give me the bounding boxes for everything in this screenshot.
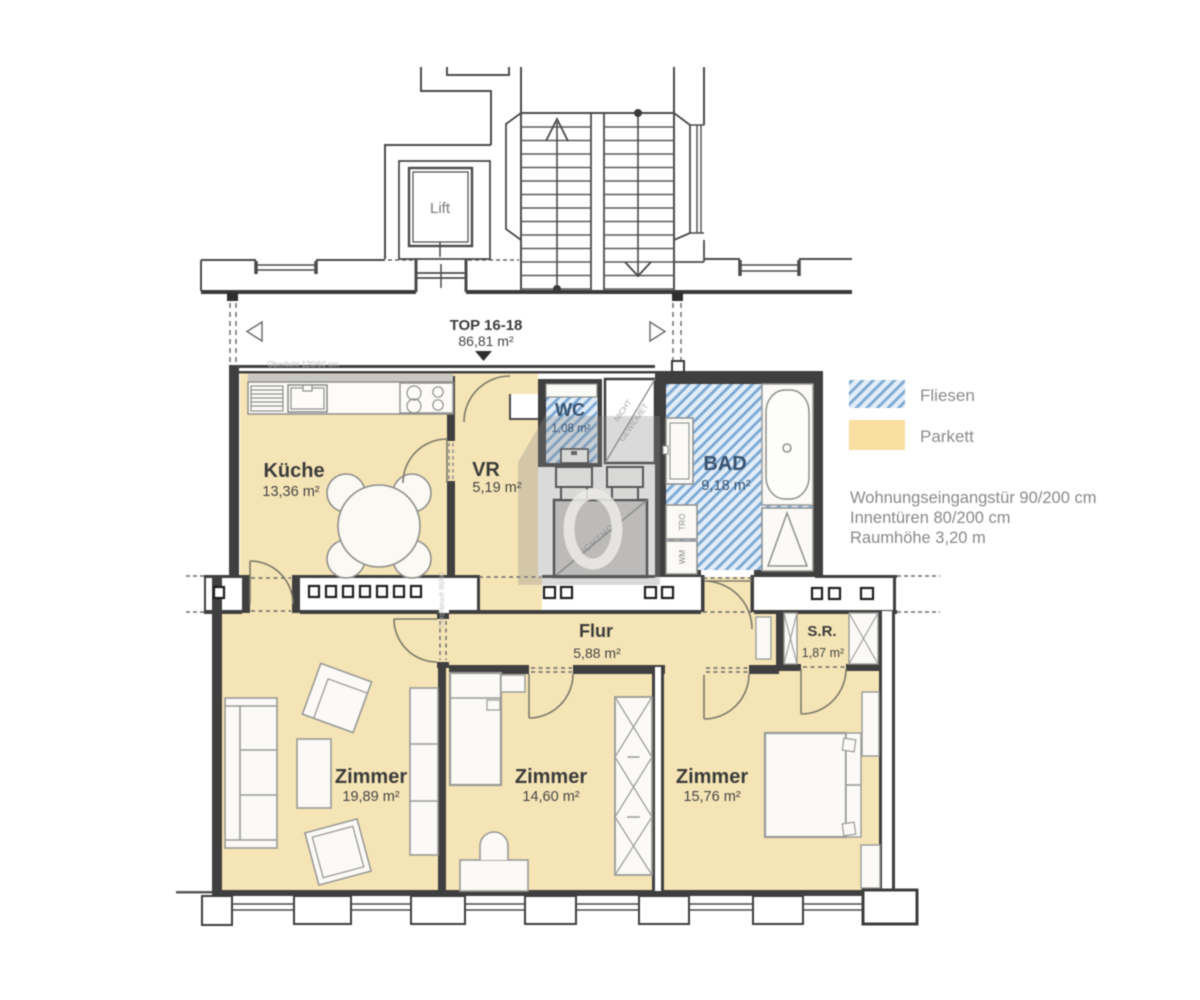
- svg-text:TRO: TRO: [678, 514, 687, 531]
- svg-text:Zimmer: Zimmer: [676, 766, 748, 788]
- svg-text:9,18 m²: 9,18 m²: [701, 478, 750, 494]
- svg-text:Oberlicht 120/60 cm: Oberlicht 120/60 cm: [267, 360, 339, 369]
- svg-text:15,76 m²: 15,76 m²: [683, 789, 740, 805]
- svg-text:Innentüren 80/200 cm: Innentüren 80/200 cm: [850, 509, 1011, 527]
- svg-text:Parkett: Parkett: [920, 427, 974, 446]
- svg-text:Flur: Flur: [579, 621, 613, 641]
- svg-text:5,88 m²: 5,88 m²: [573, 645, 621, 661]
- svg-text:WM: WM: [678, 550, 687, 565]
- svg-text:BAD: BAD: [703, 453, 746, 475]
- svg-text:1,87 m²: 1,87 m²: [802, 646, 844, 660]
- svg-text:Wohnungseingangstür 90/200 cm: Wohnungseingangstür 90/200 cm: [850, 489, 1096, 507]
- svg-text:Raumhöhe 3,20 m: Raumhöhe 3,20 m: [850, 529, 986, 547]
- svg-text:Lift: Lift: [430, 200, 451, 217]
- svg-text:14,60 m²: 14,60 m²: [522, 789, 579, 805]
- svg-text:VR: VR: [472, 459, 500, 481]
- svg-text:Zimmer: Zimmer: [335, 766, 407, 788]
- svg-text:Durchbruch 90/60: Durchbruch 90/60: [439, 572, 446, 628]
- svg-text:86,81 m²: 86,81 m²: [458, 333, 514, 349]
- svg-text:13,36 m²: 13,36 m²: [262, 484, 319, 500]
- svg-text:TOP 16-18: TOP 16-18: [450, 317, 523, 334]
- svg-text:Küche: Küche: [263, 460, 324, 482]
- svg-text:5,19 m²: 5,19 m²: [472, 480, 521, 496]
- svg-text:Zimmer: Zimmer: [515, 766, 587, 788]
- svg-text:1,08 m²: 1,08 m²: [552, 423, 591, 435]
- svg-text:19,89 m²: 19,89 m²: [342, 789, 399, 805]
- svg-text:WC: WC: [555, 400, 585, 420]
- svg-text:S.R.: S.R.: [807, 623, 836, 640]
- svg-text:Fliesen: Fliesen: [920, 386, 975, 405]
